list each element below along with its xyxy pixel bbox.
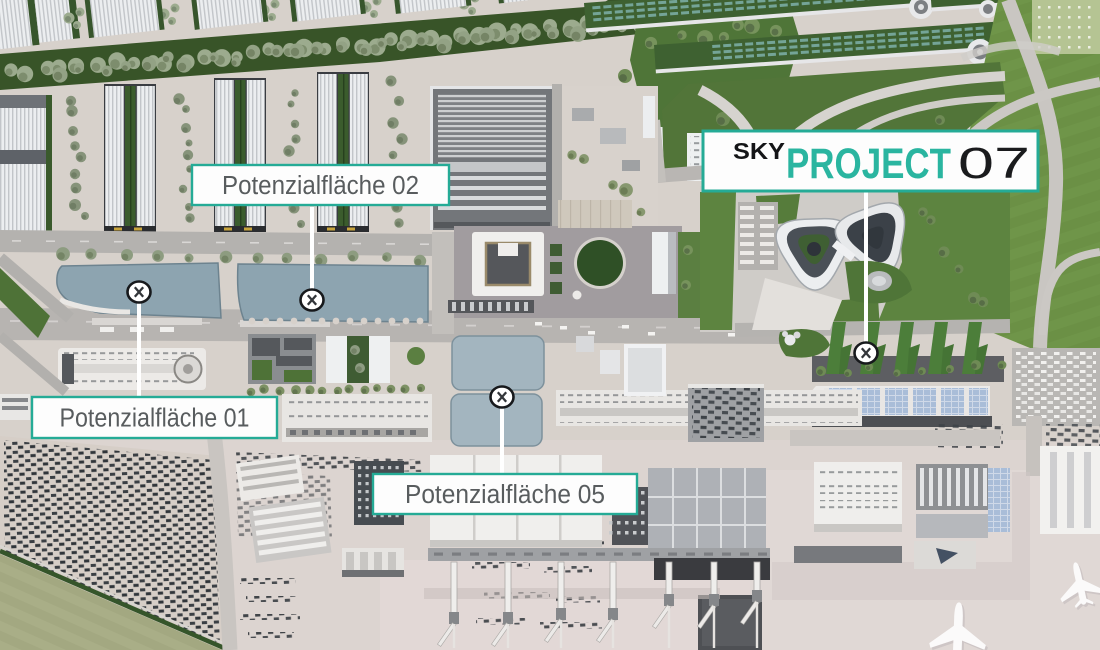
svg-text:Potenzialfläche 01: Potenzialfläche 01	[60, 405, 250, 433]
svg-text:PROJECT: PROJECT	[786, 140, 951, 188]
svg-text:SKY: SKY	[733, 138, 785, 164]
svg-text:07: 07	[958, 139, 1030, 188]
svg-text:Potenzialfläche 05: Potenzialfläche 05	[405, 481, 605, 509]
svg-text:Potenzialfläche 02: Potenzialfläche 02	[222, 172, 419, 200]
